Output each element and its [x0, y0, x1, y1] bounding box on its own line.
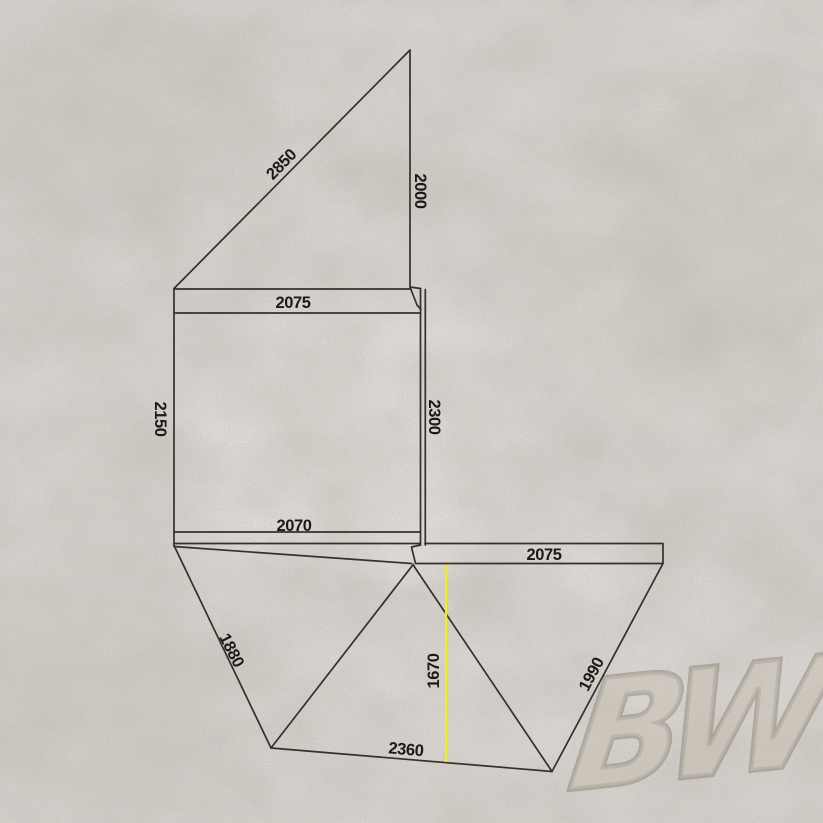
dim-bottom-strip-width: 2070 — [276, 517, 311, 535]
dim-center-panel-base: 2360 — [388, 739, 425, 760]
brand-watermark: BW — [561, 624, 823, 823]
screenshot-canvas: BW 2850 2000 2075 2150 2300 2070 1880 — [0, 0, 823, 823]
dim-roof-right-edge: 2000 — [411, 173, 429, 208]
awning-dimension-diagram: BW 2850 2000 2075 2150 2300 2070 1880 — [0, 0, 823, 823]
dim-wall-right-height: 2300 — [425, 399, 443, 434]
dim-center-panel-height: 1670 — [425, 653, 443, 688]
dim-top-strip-width: 2075 — [275, 294, 310, 312]
dim-right-strip-width: 2075 — [526, 546, 561, 564]
dim-wall-left-height: 2150 — [151, 401, 169, 436]
